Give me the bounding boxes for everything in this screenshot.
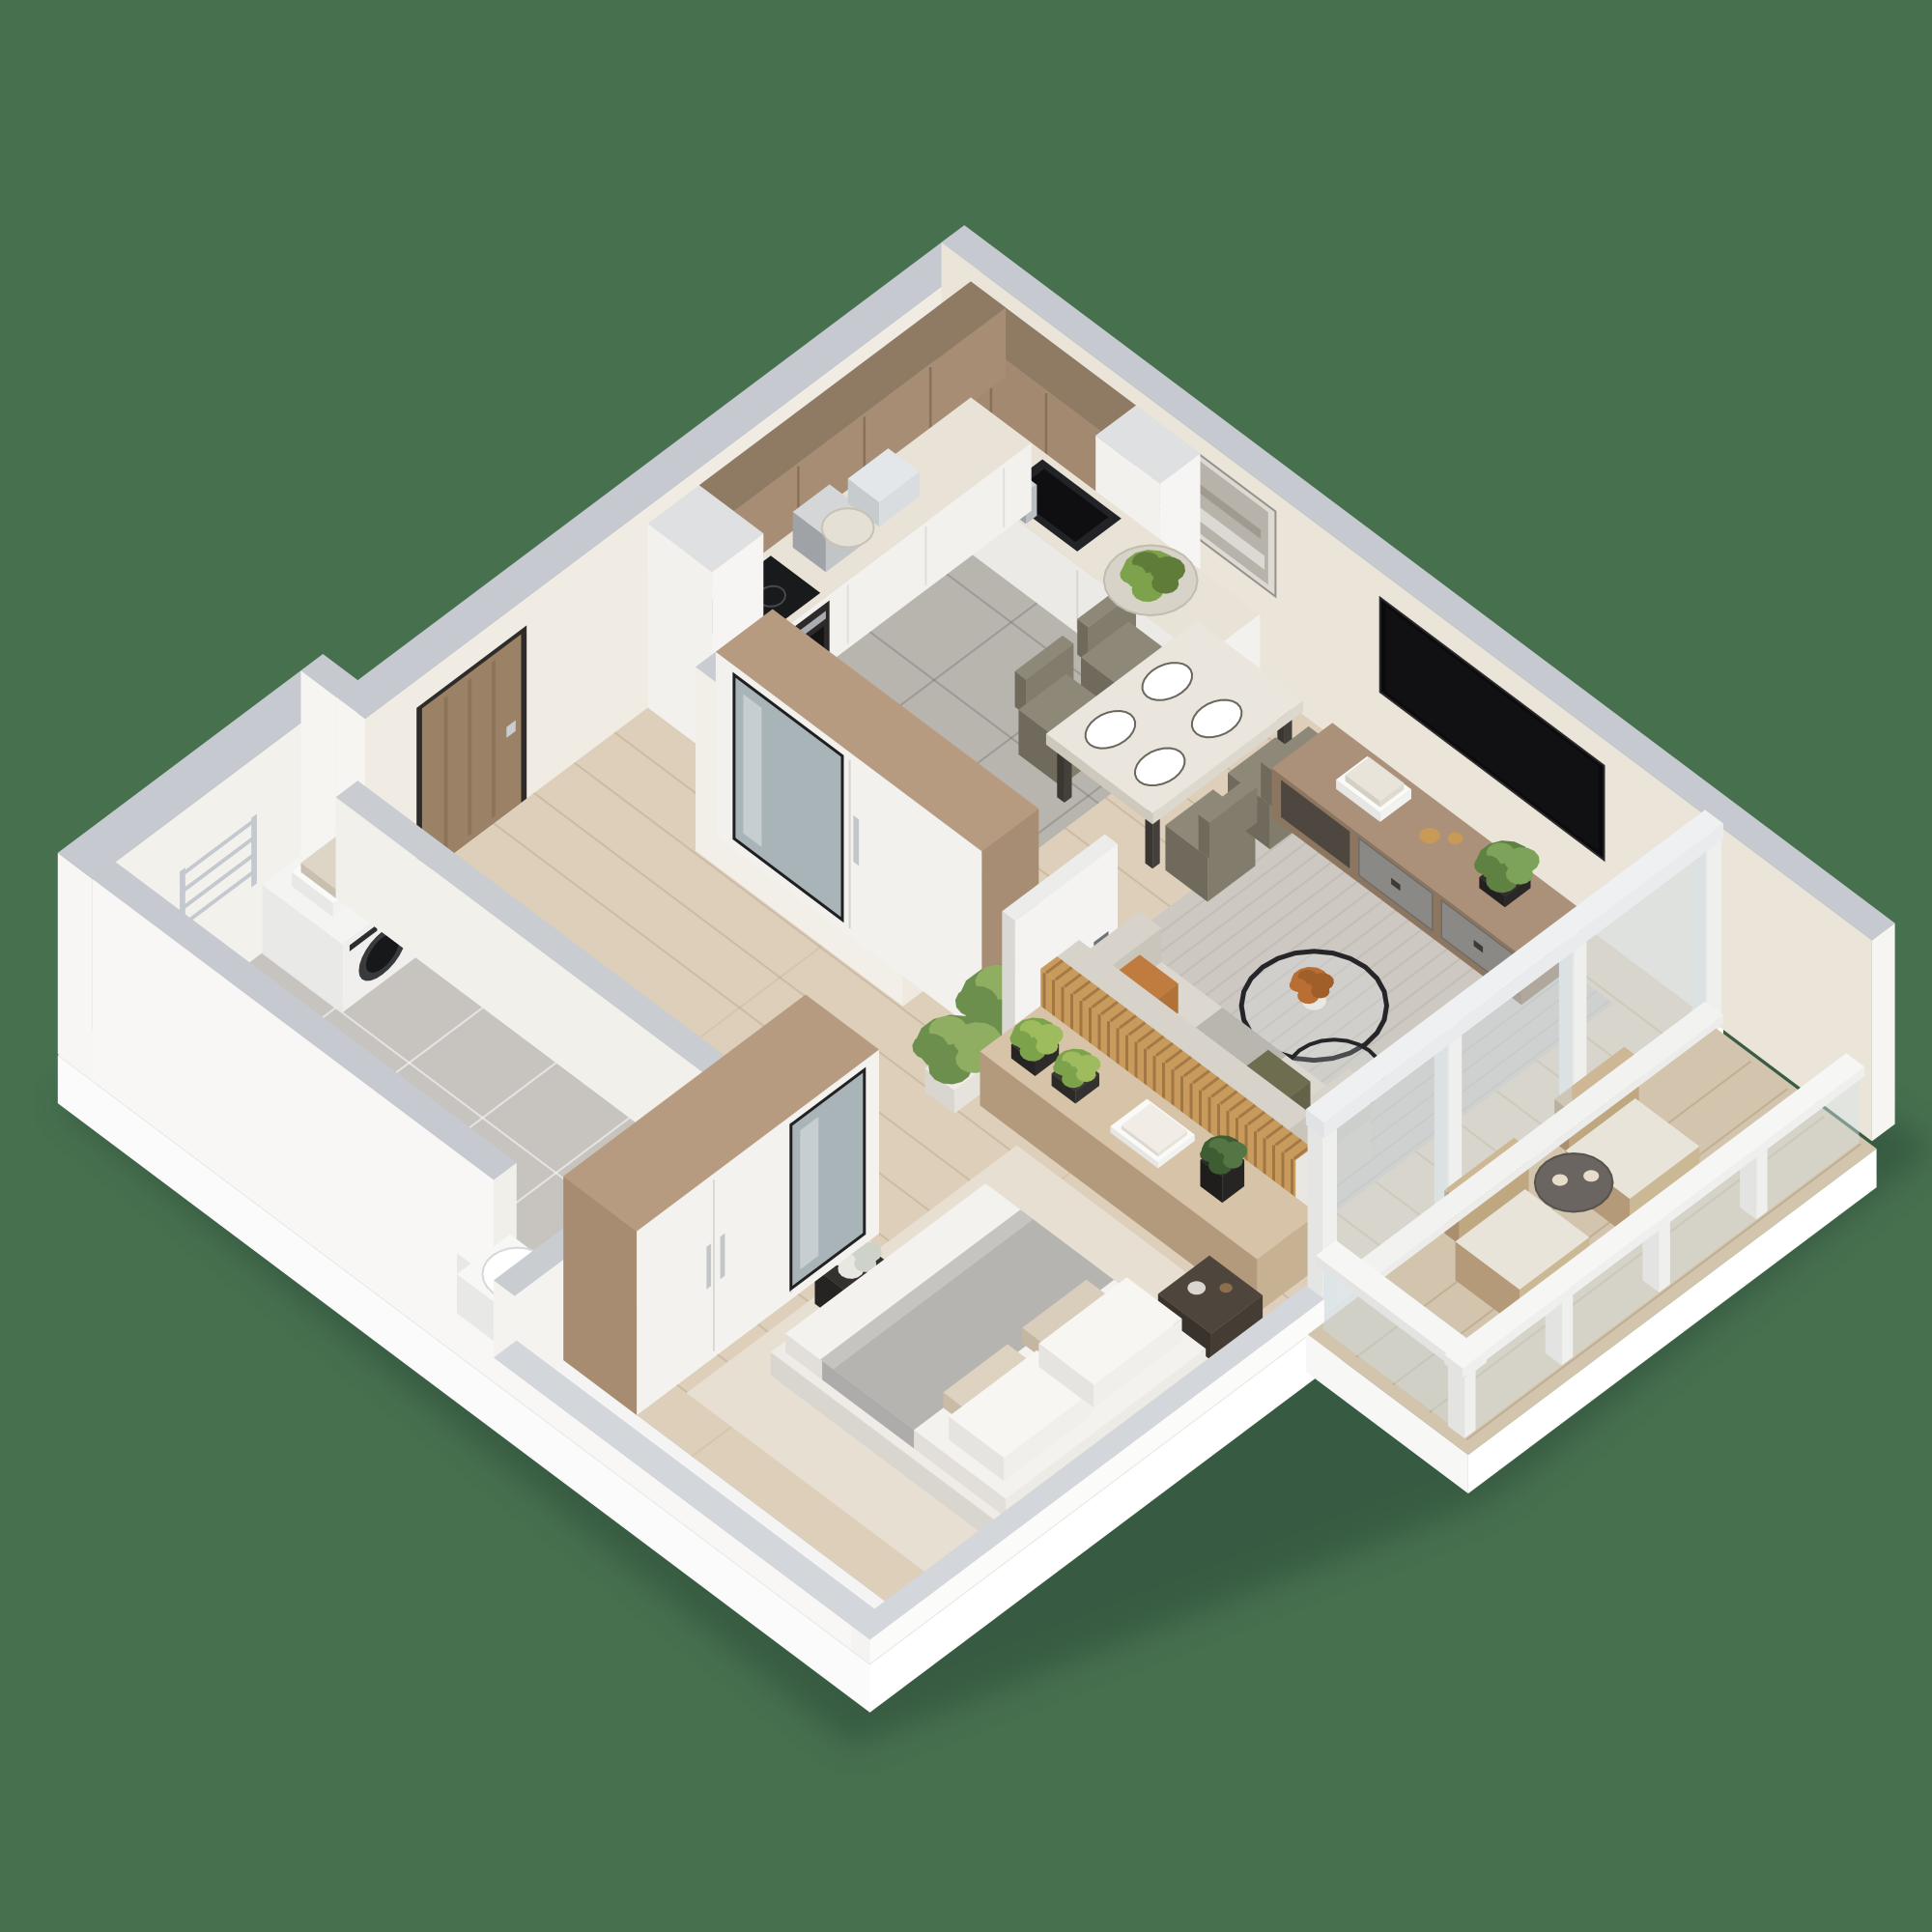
render-root — [58, 225, 1932, 1747]
balcony-cup-1 — [1552, 1175, 1568, 1186]
balcony-cup-2 — [1583, 1170, 1599, 1181]
decor-ball-2 — [1448, 833, 1463, 844]
apartment-3d-floorplan — [0, 0, 1932, 1932]
balcony-tray-table — [1535, 1153, 1613, 1212]
cutting-board — [822, 508, 874, 547]
apartment-3d-floorplan-stage — [0, 0, 1932, 1932]
decor-ball-1 — [1419, 828, 1439, 843]
nightstand-candle — [1187, 1281, 1206, 1294]
nightstand-diffuser — [1219, 1283, 1232, 1293]
